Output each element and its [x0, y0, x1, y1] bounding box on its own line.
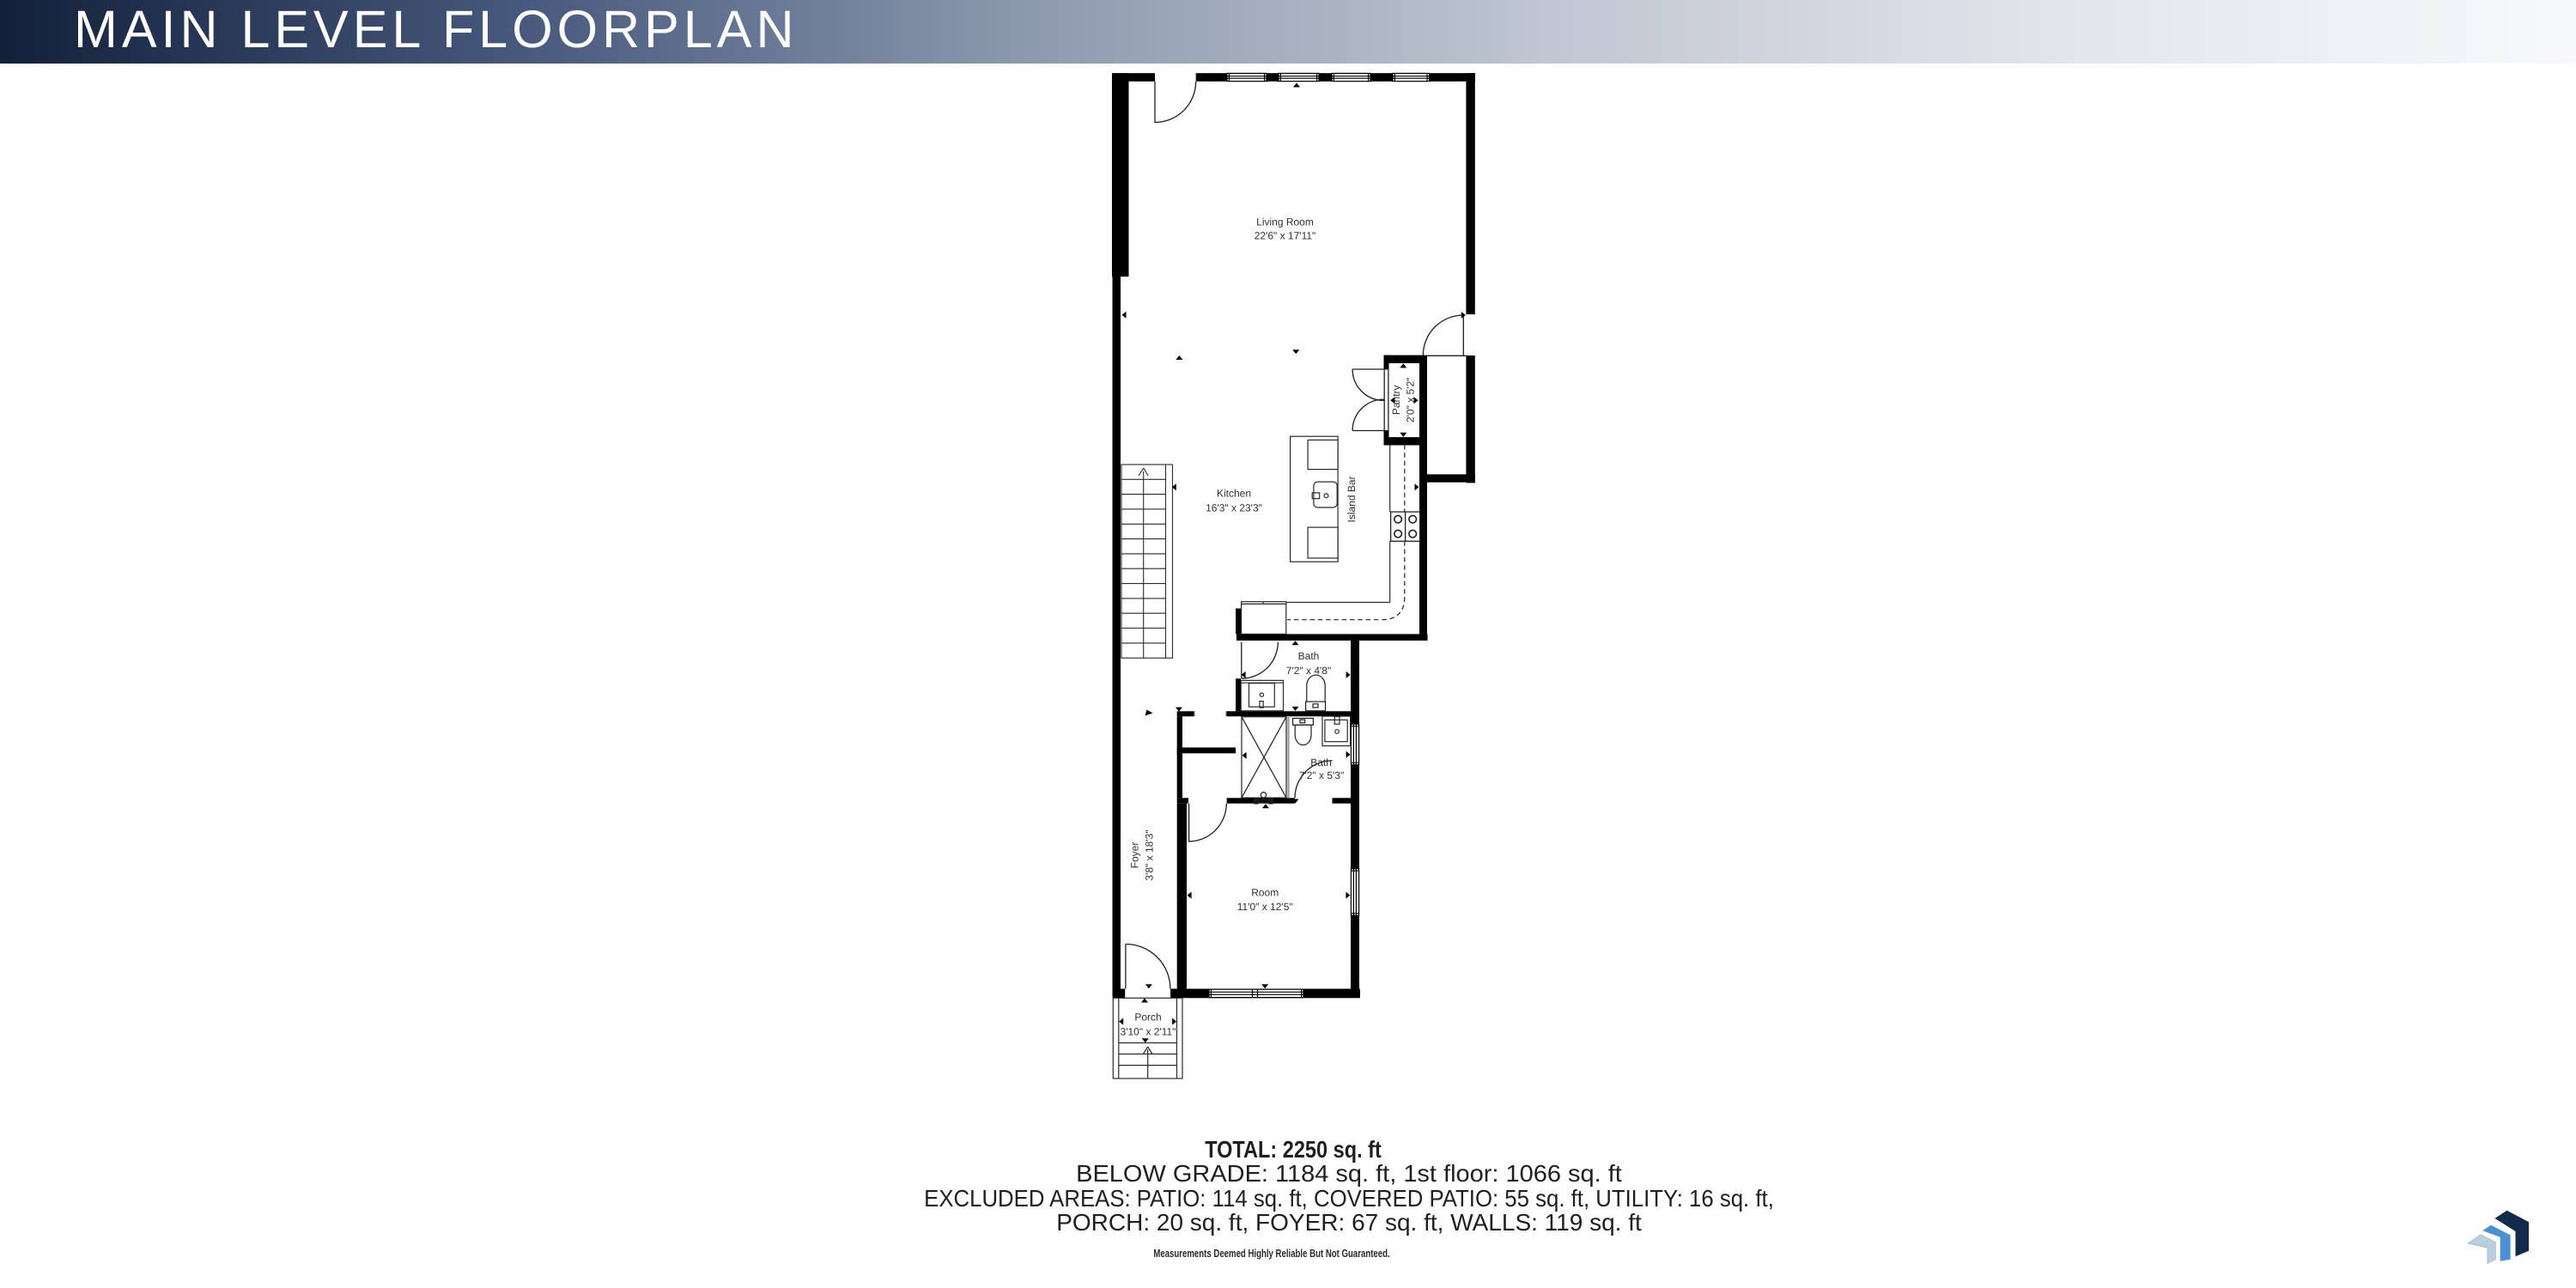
- svg-text:Foyer: Foyer: [1129, 842, 1141, 869]
- svg-text:Kitchen: Kitchen: [1217, 488, 1251, 500]
- svg-text:Bath: Bath: [1298, 650, 1320, 662]
- svg-text:Room: Room: [1251, 887, 1279, 899]
- svg-text:Pantry: Pantry: [1390, 385, 1402, 415]
- svg-text:Living Room: Living Room: [1256, 216, 1314, 228]
- svg-text:22'6" x 17'11": 22'6" x 17'11": [1255, 230, 1316, 242]
- svg-text:7'2" x 4'8": 7'2" x 4'8": [1286, 665, 1331, 677]
- svg-text:Island Bar: Island Bar: [1346, 476, 1358, 522]
- svg-text:2'0" x 5'2": 2'0" x 5'2": [1405, 378, 1417, 422]
- svg-text:3'10" x 2'11": 3'10" x 2'11": [1121, 1026, 1176, 1038]
- svg-text:7'2" x 5'3": 7'2" x 5'3": [1299, 769, 1344, 781]
- svg-text:3'8" x 18'3": 3'8" x 18'3": [1144, 829, 1156, 880]
- svg-text:Porch: Porch: [1134, 1012, 1161, 1024]
- svg-text:16'3" x 23'3": 16'3" x 23'3": [1206, 502, 1262, 514]
- svg-text:11'0" x 12'5": 11'0" x 12'5": [1237, 901, 1293, 913]
- svg-text:Bath: Bath: [1310, 756, 1332, 769]
